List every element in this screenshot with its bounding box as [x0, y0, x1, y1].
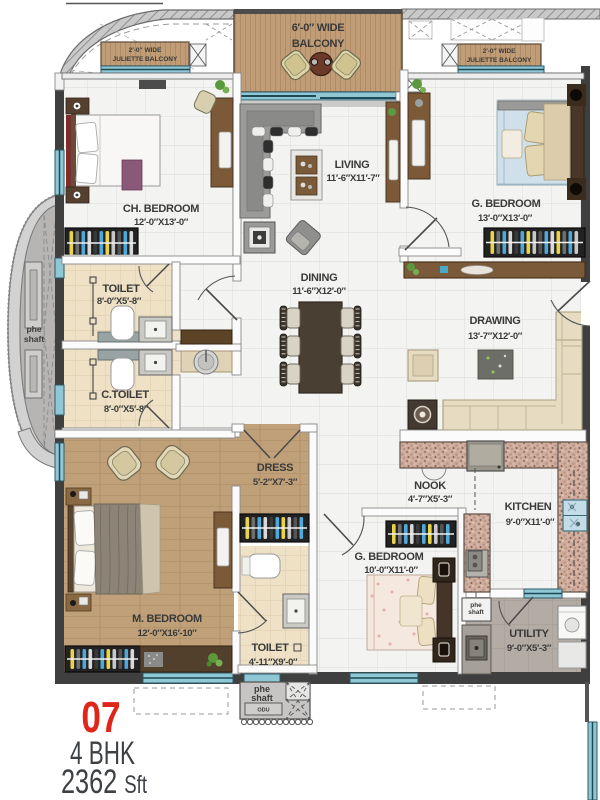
svg-text:shaft: shaft [468, 609, 484, 616]
svg-text:TOILET: TOILET [251, 642, 289, 654]
svg-text:13′-0″X13′-0″: 13′-0″X13′-0″ [478, 213, 533, 224]
svg-text:11′-6″X11′-7″: 11′-6″X11′-7″ [326, 173, 380, 184]
svg-text:LIVING: LIVING [335, 159, 370, 171]
svg-text:12′-0″X13′-0″: 12′-0″X13′-0″ [134, 217, 189, 228]
svg-text:UTILITY: UTILITY [509, 628, 549, 640]
svg-text:13′-7″X12′-0″: 13′-7″X12′-0″ [468, 331, 523, 342]
svg-text:BALCONY: BALCONY [292, 38, 345, 50]
svg-text:8′-0″X5′-8″: 8′-0″X5′-8″ [97, 296, 142, 307]
svg-text:phe: phe [26, 324, 41, 334]
svg-text:TOILET: TOILET [102, 283, 140, 295]
svg-text:4′-11″X9′-0″: 4′-11″X9′-0″ [249, 657, 298, 668]
svg-text:11′-6″X12′-0″: 11′-6″X12′-0″ [292, 286, 346, 297]
svg-text:KITCHEN: KITCHEN [505, 501, 552, 513]
svg-text:G. BEDROOM: G. BEDROOM [471, 198, 540, 210]
svg-text:M. BEDROOM: M. BEDROOM [132, 613, 202, 625]
svg-text:shaft: shaft [251, 693, 273, 703]
svg-text:2′-0″ WIDE: 2′-0″ WIDE [483, 48, 517, 55]
svg-text:ODU: ODU [257, 708, 269, 714]
svg-text:CH. BEDROOM: CH. BEDROOM [123, 203, 199, 215]
svg-text:5′-2″X7′-3″: 5′-2″X7′-3″ [253, 477, 298, 488]
svg-text:NOOK: NOOK [414, 480, 446, 492]
svg-text:JULIETTE BALCONY: JULIETTE BALCONY [113, 56, 178, 63]
svg-text:4′-7″X5′-3″: 4′-7″X5′-3″ [408, 494, 453, 505]
svg-text:C.TOILET: C.TOILET [101, 389, 149, 401]
svg-text:G. BEDROOM: G. BEDROOM [354, 551, 423, 563]
svg-text:shaft: shaft [24, 334, 44, 344]
svg-text:DRAWING: DRAWING [469, 315, 520, 327]
svg-text:phe: phe [470, 602, 482, 609]
svg-text:DINING: DINING [301, 272, 338, 284]
svg-text:JULIETTE BALCONY: JULIETTE BALCONY [467, 57, 532, 64]
svg-text:10′-0″X11′-0″: 10′-0″X11′-0″ [364, 565, 418, 576]
svg-text:9′-0″X11′-0″: 9′-0″X11′-0″ [506, 517, 555, 528]
svg-text:12′-0″X16′-10″: 12′-0″X16′-10″ [137, 628, 197, 639]
svg-text:2′-0″ WIDE: 2′-0″ WIDE [129, 47, 163, 54]
svg-text:DRESS: DRESS [257, 462, 293, 474]
svg-text:9′-0″X5′-3″: 9′-0″X5′-3″ [507, 643, 552, 654]
svg-text:6′-0″ WIDE: 6′-0″ WIDE [292, 22, 345, 34]
